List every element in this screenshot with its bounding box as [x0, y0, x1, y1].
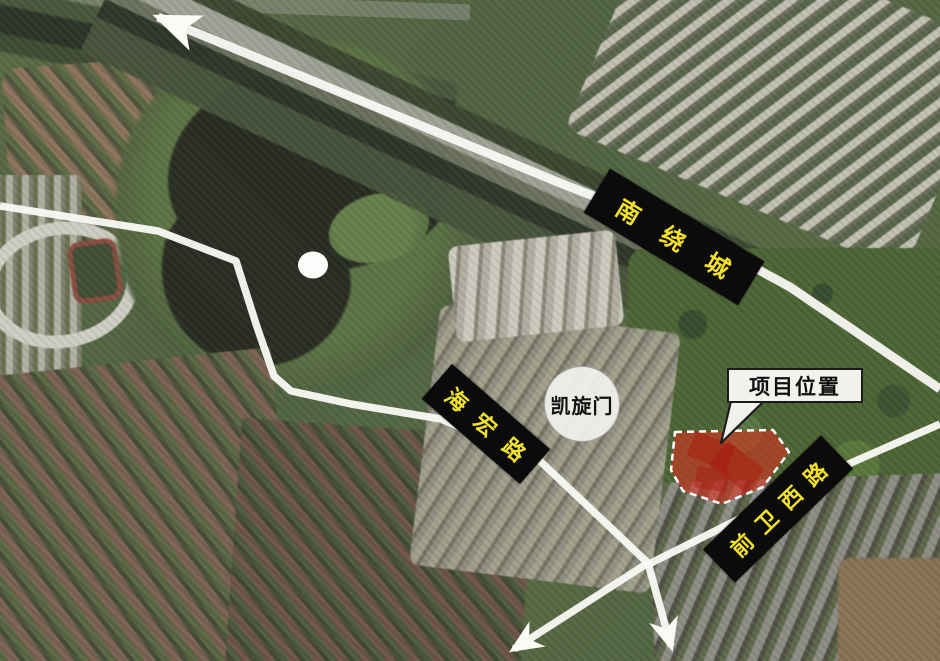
project-location-callout-text: 项目位置 — [749, 371, 841, 401]
lake-white-dot-marker — [298, 252, 328, 279]
road-line-ring-road — [158, 17, 940, 389]
map-annotation-overlay — [0, 0, 940, 661]
project-location-satellite-map: 南绕城 海宏路 前卫西路 凯旋门 项目位置 — [0, 0, 940, 661]
landmark-arch-circle: 凯旋门 — [544, 366, 620, 442]
project-location-callout: 项目位置 — [727, 368, 863, 403]
landmark-arch-label: 凯旋门 — [551, 390, 614, 419]
road-line-southwest-branch — [514, 563, 648, 649]
